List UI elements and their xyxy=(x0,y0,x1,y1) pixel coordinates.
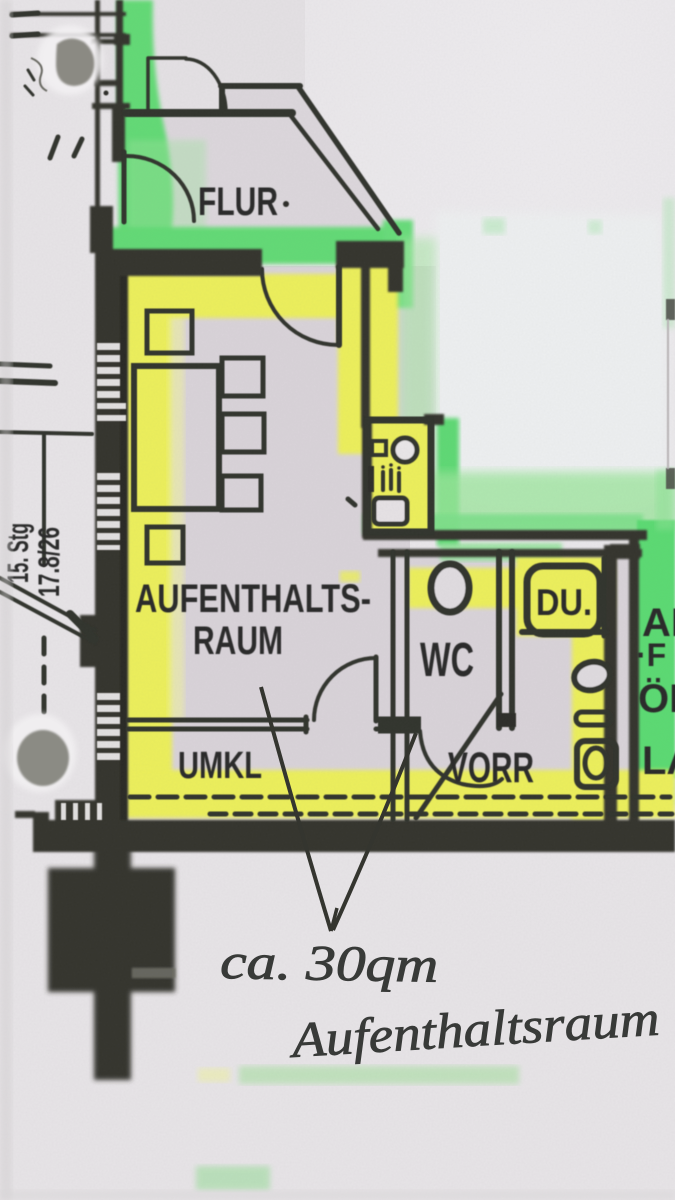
svg-text:ca. 30qm: ca. 30qm xyxy=(220,933,439,993)
